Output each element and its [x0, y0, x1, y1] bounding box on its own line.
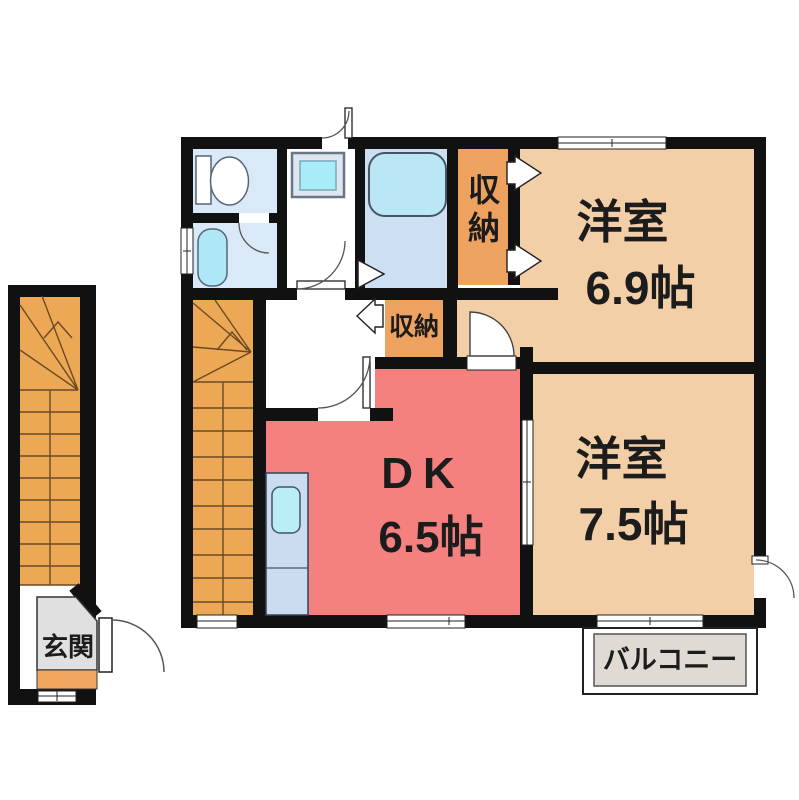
balcony-label: バルコニー	[594, 646, 746, 674]
wall-wc-hall	[277, 149, 287, 288]
entrance-label: 玄関	[30, 634, 106, 661]
kitchen-sink-icon	[266, 473, 308, 615]
floor-plan: 洋室 6.9帖 洋室 7.5帖 DK 6.5帖 収納 収納 バルコニー 玄関	[0, 0, 799, 800]
wall-closet-lower-right	[443, 288, 457, 369]
room75-exterior-door	[752, 556, 794, 598]
entrance-door-arc	[112, 620, 164, 672]
bathtub-icon	[369, 153, 446, 216]
room75-size-label: 7.5帖	[541, 500, 726, 548]
floor-plan-drawing	[0, 0, 799, 800]
room69-size-label: 6.9帖	[548, 264, 733, 312]
toilet-icon	[196, 156, 249, 205]
closet-lower-label: 収納	[383, 314, 445, 340]
wall-middle-horizontal	[181, 288, 558, 300]
room75-name-label: 洋室	[539, 435, 704, 483]
wall-room69-room75	[533, 362, 754, 374]
window-left-washroom	[181, 228, 193, 274]
stair-block-bottom-window	[38, 691, 76, 702]
room69-name-label: 洋室	[540, 198, 705, 246]
wall-bathroom-closet	[447, 137, 458, 297]
window-bottom-stairs	[197, 615, 237, 628]
wall-stairs-hall	[253, 288, 266, 615]
washing-machine-icon	[292, 153, 344, 197]
window-top-room69	[558, 137, 666, 149]
window-bottom-dk	[387, 615, 465, 628]
top-exterior-door	[322, 108, 352, 149]
closet-upper-label: 収納	[466, 172, 502, 248]
dk-name-label: DK	[338, 451, 498, 497]
entrance-step	[37, 670, 97, 689]
western-room-75-floor	[533, 374, 754, 615]
dk-floor-upper	[375, 369, 520, 421]
dk-size-label: 6.5帖	[336, 515, 526, 561]
window-balcony-slider	[597, 615, 703, 628]
wall-wc-washroom	[181, 213, 287, 223]
western-room-69-floor	[520, 149, 754, 362]
washbasin-icon	[198, 229, 227, 286]
